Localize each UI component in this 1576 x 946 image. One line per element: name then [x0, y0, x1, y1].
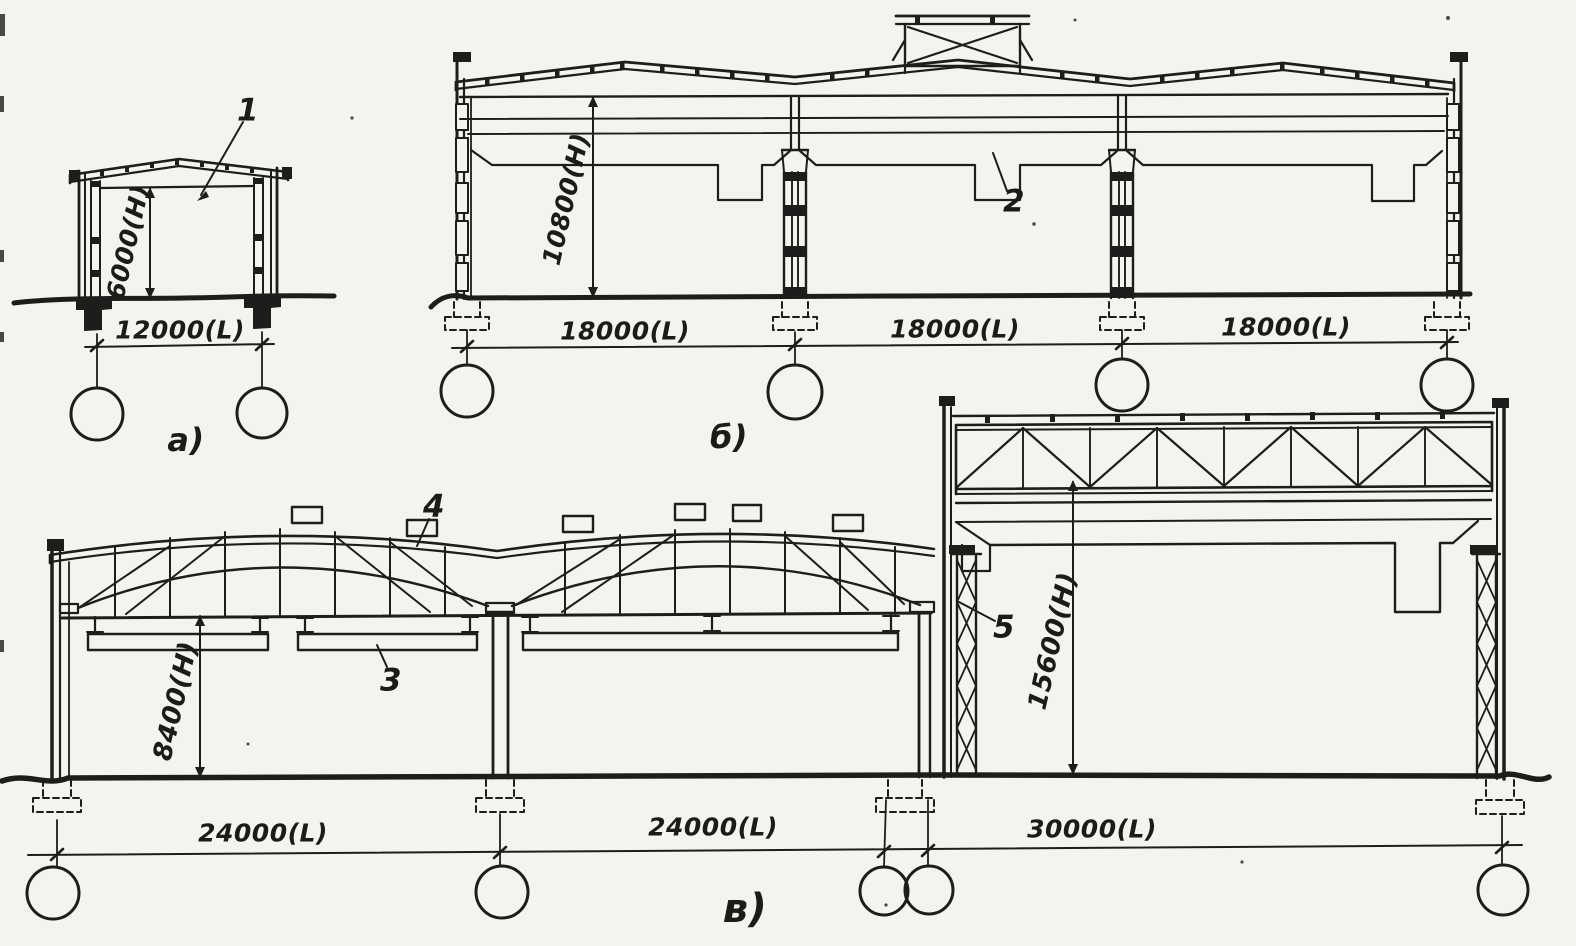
section-a-label: а): [167, 424, 204, 456]
callout-5: 5: [993, 613, 1015, 644]
section-b-label: б): [710, 421, 748, 453]
callout-4: 4: [423, 492, 445, 523]
dim-v-span-3: 30000(L): [1027, 817, 1157, 842]
callout-2: 2: [1003, 187, 1025, 218]
dim-v-span-1: 24000(L): [198, 821, 328, 846]
dim-a-span: 12000(L): [115, 318, 245, 343]
section-a-linework: [14, 122, 334, 440]
dim-v-span-2: 24000(L): [648, 815, 778, 840]
dim-b-span-3: 18000(L): [1221, 315, 1351, 340]
callout-1: 1: [237, 96, 259, 127]
scan-artifacts: [0, 14, 1450, 907]
dim-b-span-2: 18000(L): [890, 317, 1020, 342]
callout-3: 3: [380, 666, 402, 697]
section-b-linework: [431, 16, 1473, 419]
section-v-label: в): [723, 889, 768, 929]
technical-drawing-sheet: 6000(H) 12000(L) а) 1 10800(H) 18000(L) …: [0, 0, 1576, 946]
drawing-linework: [0, 0, 1576, 946]
dim-b-span-1: 18000(L): [560, 319, 690, 344]
